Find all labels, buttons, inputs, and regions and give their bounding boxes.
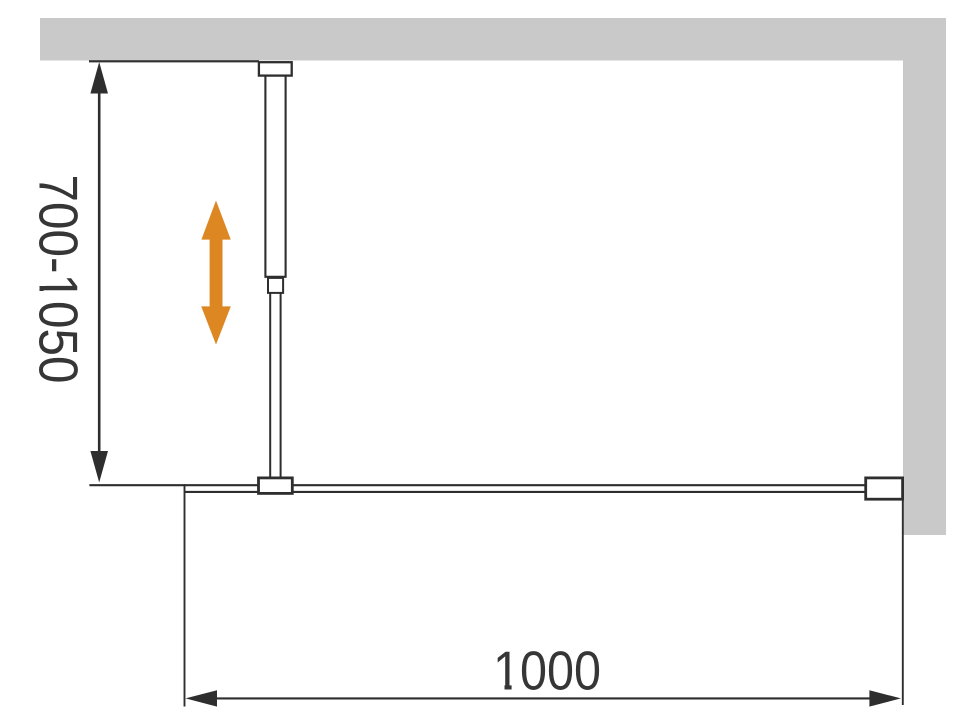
svg-text:700-1050: 700-1050 <box>28 175 90 384</box>
svg-text:1000: 1000 <box>493 640 601 702</box>
